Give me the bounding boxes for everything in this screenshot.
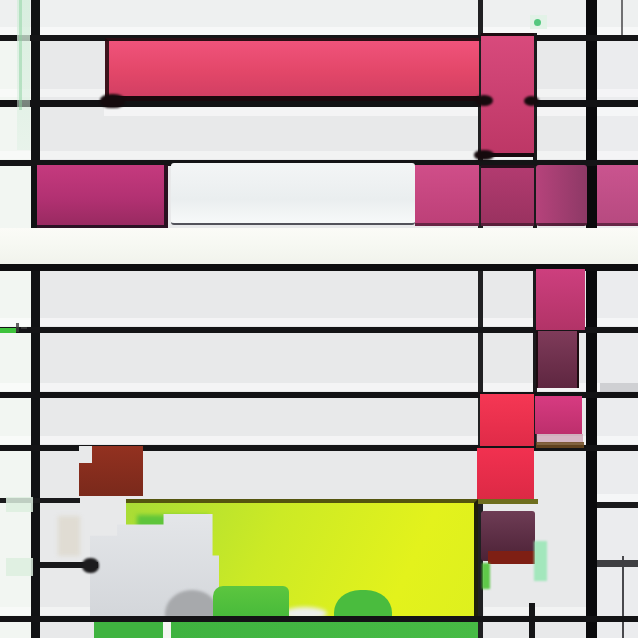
beige-smudge [58, 516, 80, 556]
smudge-bar-corner [100, 94, 125, 108]
mint-sliver-right [534, 541, 547, 581]
mid-magenta-block [37, 165, 168, 228]
line-end-blob [82, 558, 99, 573]
smudge-column-bottom [474, 150, 494, 160]
mid-pink-block-1 [415, 165, 479, 226]
green-band-left [94, 622, 163, 638]
mid-pink-block-2 [481, 165, 534, 226]
mint-wash-2 [6, 558, 33, 576]
band-gap [163, 622, 171, 638]
white-band [0, 228, 638, 264]
maroon-block [536, 331, 579, 388]
right-gray-bar [600, 383, 638, 392]
mid-light-block [171, 163, 415, 225]
glyph-mark-b [21, 327, 27, 329]
v-line-left [31, 0, 40, 638]
green-dash [0, 328, 16, 333]
row-bevel [0, 151, 638, 159]
brown-line [536, 442, 584, 448]
red-block-b [477, 448, 534, 500]
dark-red-patch [488, 551, 535, 564]
h-line-9-right [597, 502, 638, 508]
pink-bar [105, 38, 479, 101]
bright-pink-block [535, 396, 582, 434]
green-patch [213, 586, 289, 620]
v-line-faint-bottom-right [622, 556, 624, 638]
abstract-artwork [0, 0, 638, 638]
row-bevel [0, 607, 94, 615]
h-line-10-right [597, 560, 638, 567]
olive-line [477, 499, 538, 504]
mid-pink-block-3 [597, 165, 638, 226]
row-bevel [597, 494, 638, 502]
glyph-mark-a [16, 323, 19, 332]
red-block-a [480, 394, 534, 446]
h-line-2 [0, 100, 638, 107]
v-line-faint-top-right [621, 0, 623, 37]
brick-notch [79, 446, 92, 463]
green-band-main [171, 622, 478, 638]
mint-wash-1 [6, 497, 33, 512]
mint-left-line [19, 0, 22, 110]
row-bevel [484, 607, 597, 615]
green-dot [534, 19, 541, 26]
mid-purple-block [536, 165, 587, 226]
smudge-cross-left [475, 95, 493, 106]
green-sliver-left [482, 563, 490, 589]
lower-pink-block [536, 269, 585, 330]
v-line-right-thick [586, 0, 597, 638]
smudge-cross-right [524, 96, 539, 106]
